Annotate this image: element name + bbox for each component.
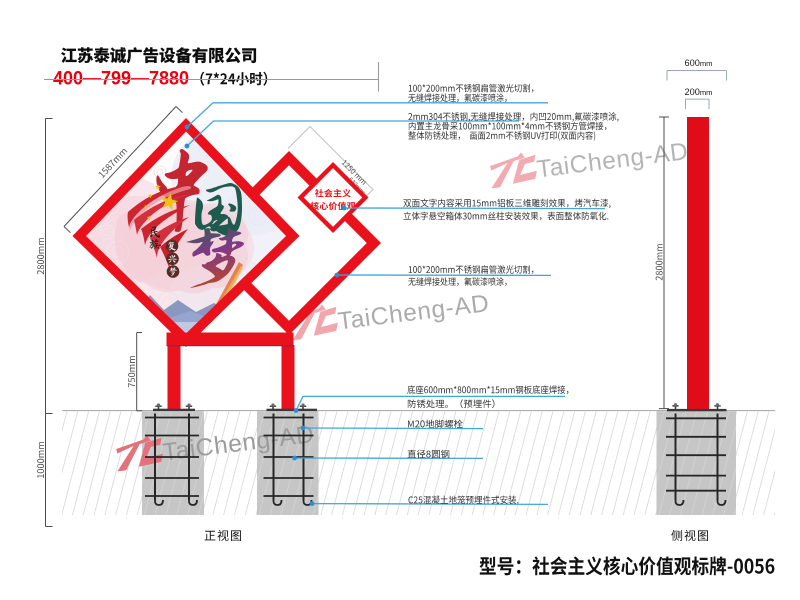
svg-text:200mm: 200mm bbox=[685, 87, 713, 97]
svg-text:400—799—7880: 400—799—7880 bbox=[53, 67, 189, 89]
svg-text:600mm: 600mm bbox=[685, 58, 713, 68]
